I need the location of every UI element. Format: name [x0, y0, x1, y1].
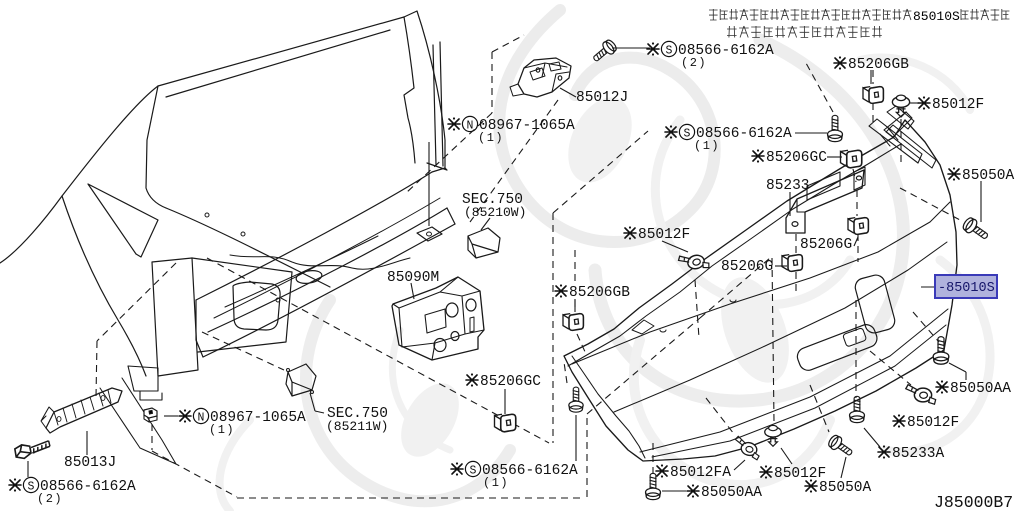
- svg-text:85012J: 85012J: [576, 90, 628, 106]
- svg-text:85206GB: 85206GB: [569, 285, 630, 301]
- svg-text:(1): (1): [694, 139, 720, 153]
- svg-text:N: N: [198, 412, 205, 425]
- svg-text:85050AA: 85050AA: [950, 381, 1011, 397]
- svg-text:85050A: 85050A: [962, 168, 1015, 184]
- svg-text:(85211W): (85211W): [326, 419, 388, 434]
- svg-text:S: S: [28, 481, 35, 494]
- svg-text:(1): (1): [478, 131, 504, 145]
- svg-text:(1): (1): [209, 423, 235, 437]
- svg-text:(85210W): (85210W): [464, 205, 526, 220]
- svg-text:(2): (2): [37, 492, 63, 506]
- svg-text:-85010S: -85010S: [938, 281, 995, 296]
- svg-text:S: S: [470, 465, 477, 478]
- svg-text:85206GC: 85206GC: [766, 150, 827, 166]
- svg-text:85012F: 85012F: [932, 97, 984, 113]
- svg-text:S: S: [666, 45, 673, 58]
- svg-text:S: S: [684, 128, 691, 141]
- svg-text:85050AA: 85050AA: [701, 485, 762, 501]
- svg-text:85233A: 85233A: [892, 446, 945, 462]
- svg-text:85090M: 85090M: [387, 270, 439, 286]
- svg-text:85050A: 85050A: [819, 480, 872, 496]
- svg-text:85206G: 85206G: [800, 237, 852, 253]
- svg-text:N: N: [467, 120, 474, 133]
- svg-text:85012F: 85012F: [638, 227, 690, 243]
- svg-text:85233: 85233: [766, 178, 810, 194]
- svg-text:85010S: 85010S: [913, 9, 960, 24]
- svg-text:(1): (1): [483, 476, 509, 490]
- svg-text:J85000B7: J85000B7: [934, 493, 1013, 511]
- svg-text:85012F: 85012F: [907, 415, 959, 431]
- svg-text:85206GC: 85206GC: [480, 374, 541, 390]
- svg-text:85013J: 85013J: [64, 455, 116, 471]
- svg-text:85206GB: 85206GB: [848, 57, 909, 73]
- svg-text:(2): (2): [681, 56, 707, 70]
- svg-text:85206G: 85206G: [721, 259, 773, 275]
- svg-text:85012FA: 85012FA: [670, 465, 731, 481]
